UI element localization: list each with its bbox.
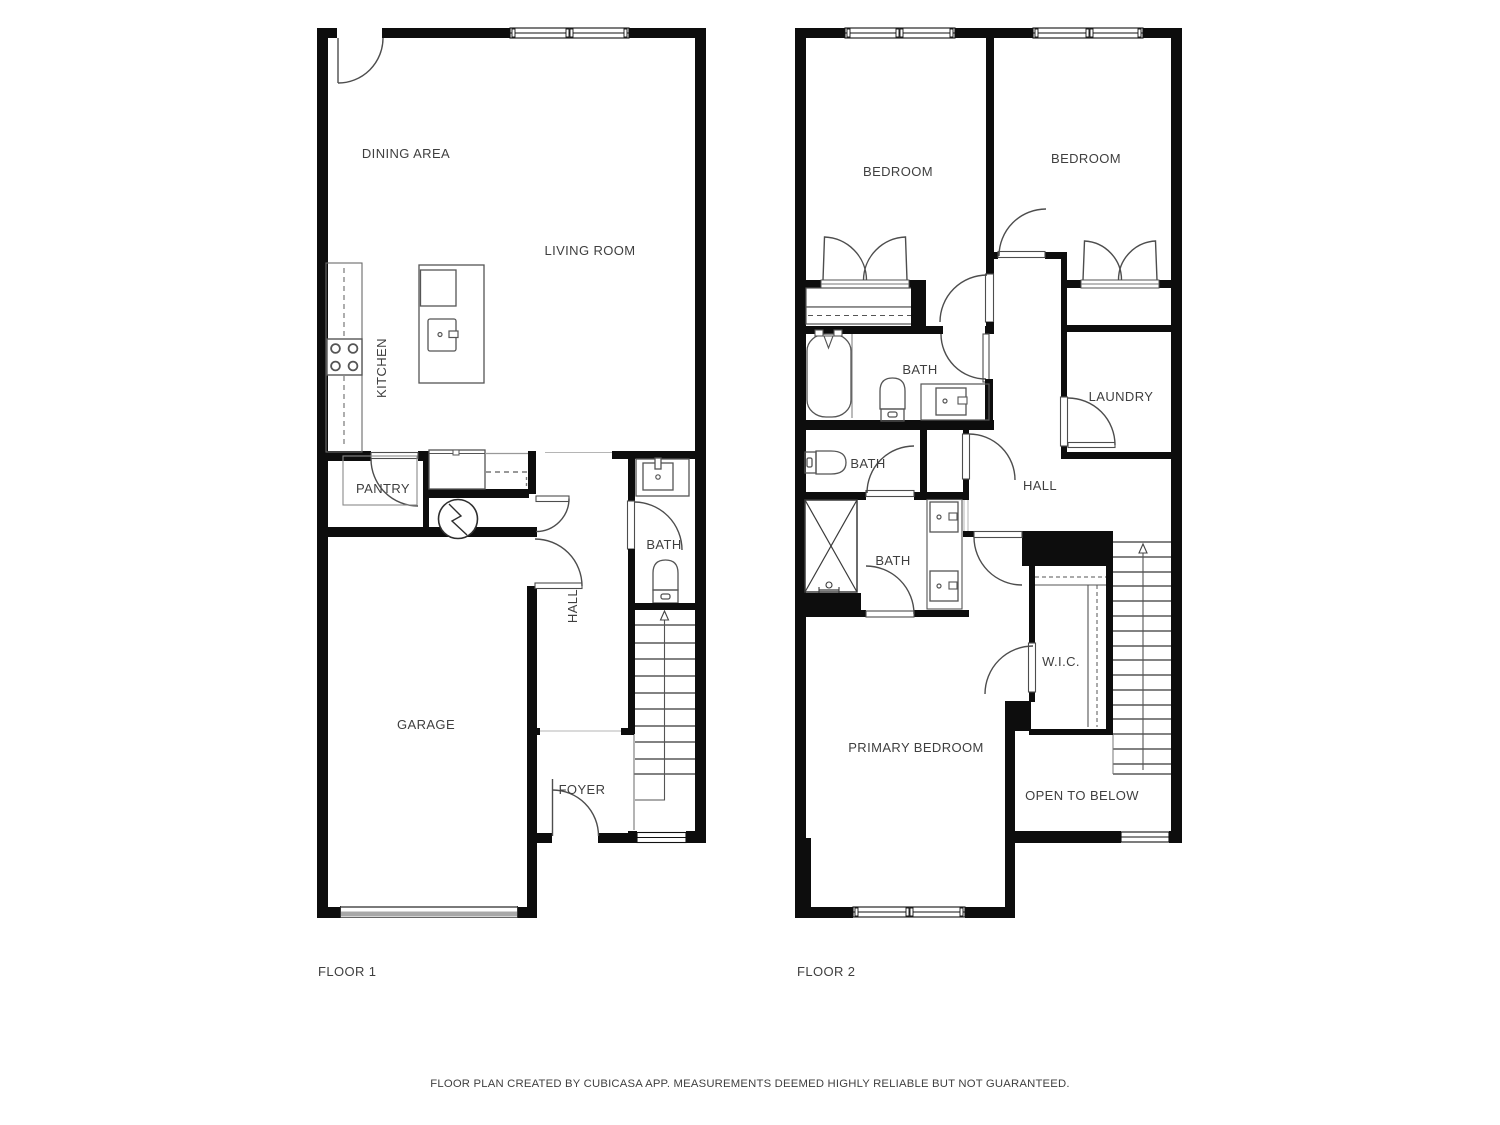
- svg-text:HALL: HALL: [565, 589, 580, 623]
- svg-text:KITCHEN: KITCHEN: [374, 338, 389, 398]
- svg-text:W.I.C.: W.I.C.: [1042, 654, 1080, 669]
- svg-text:BEDROOM: BEDROOM: [863, 164, 933, 179]
- svg-text:OPEN TO BELOW: OPEN TO BELOW: [1025, 788, 1139, 803]
- svg-text:LIVING ROOM: LIVING ROOM: [544, 243, 635, 258]
- svg-text:DINING AREA: DINING AREA: [362, 146, 450, 161]
- svg-text:GARAGE: GARAGE: [397, 717, 455, 732]
- svg-text:FLOOR PLAN CREATED BY CUBICASA: FLOOR PLAN CREATED BY CUBICASA APP. MEAS…: [430, 1078, 1069, 1090]
- svg-text:BATH: BATH: [850, 456, 885, 471]
- svg-text:HALL: HALL: [1023, 478, 1057, 493]
- svg-text:PANTRY: PANTRY: [356, 481, 410, 496]
- svg-text:FLOOR 2: FLOOR 2: [797, 964, 855, 979]
- svg-text:FLOOR 1: FLOOR 1: [318, 964, 376, 979]
- svg-text:BEDROOM: BEDROOM: [1051, 151, 1121, 166]
- svg-text:BATH: BATH: [902, 362, 937, 377]
- svg-text:BATH: BATH: [646, 537, 681, 552]
- svg-text:PRIMARY BEDROOM: PRIMARY BEDROOM: [848, 740, 984, 755]
- svg-text:LAUNDRY: LAUNDRY: [1089, 389, 1154, 404]
- svg-text:FOYER: FOYER: [559, 782, 606, 797]
- svg-text:BATH: BATH: [875, 553, 910, 568]
